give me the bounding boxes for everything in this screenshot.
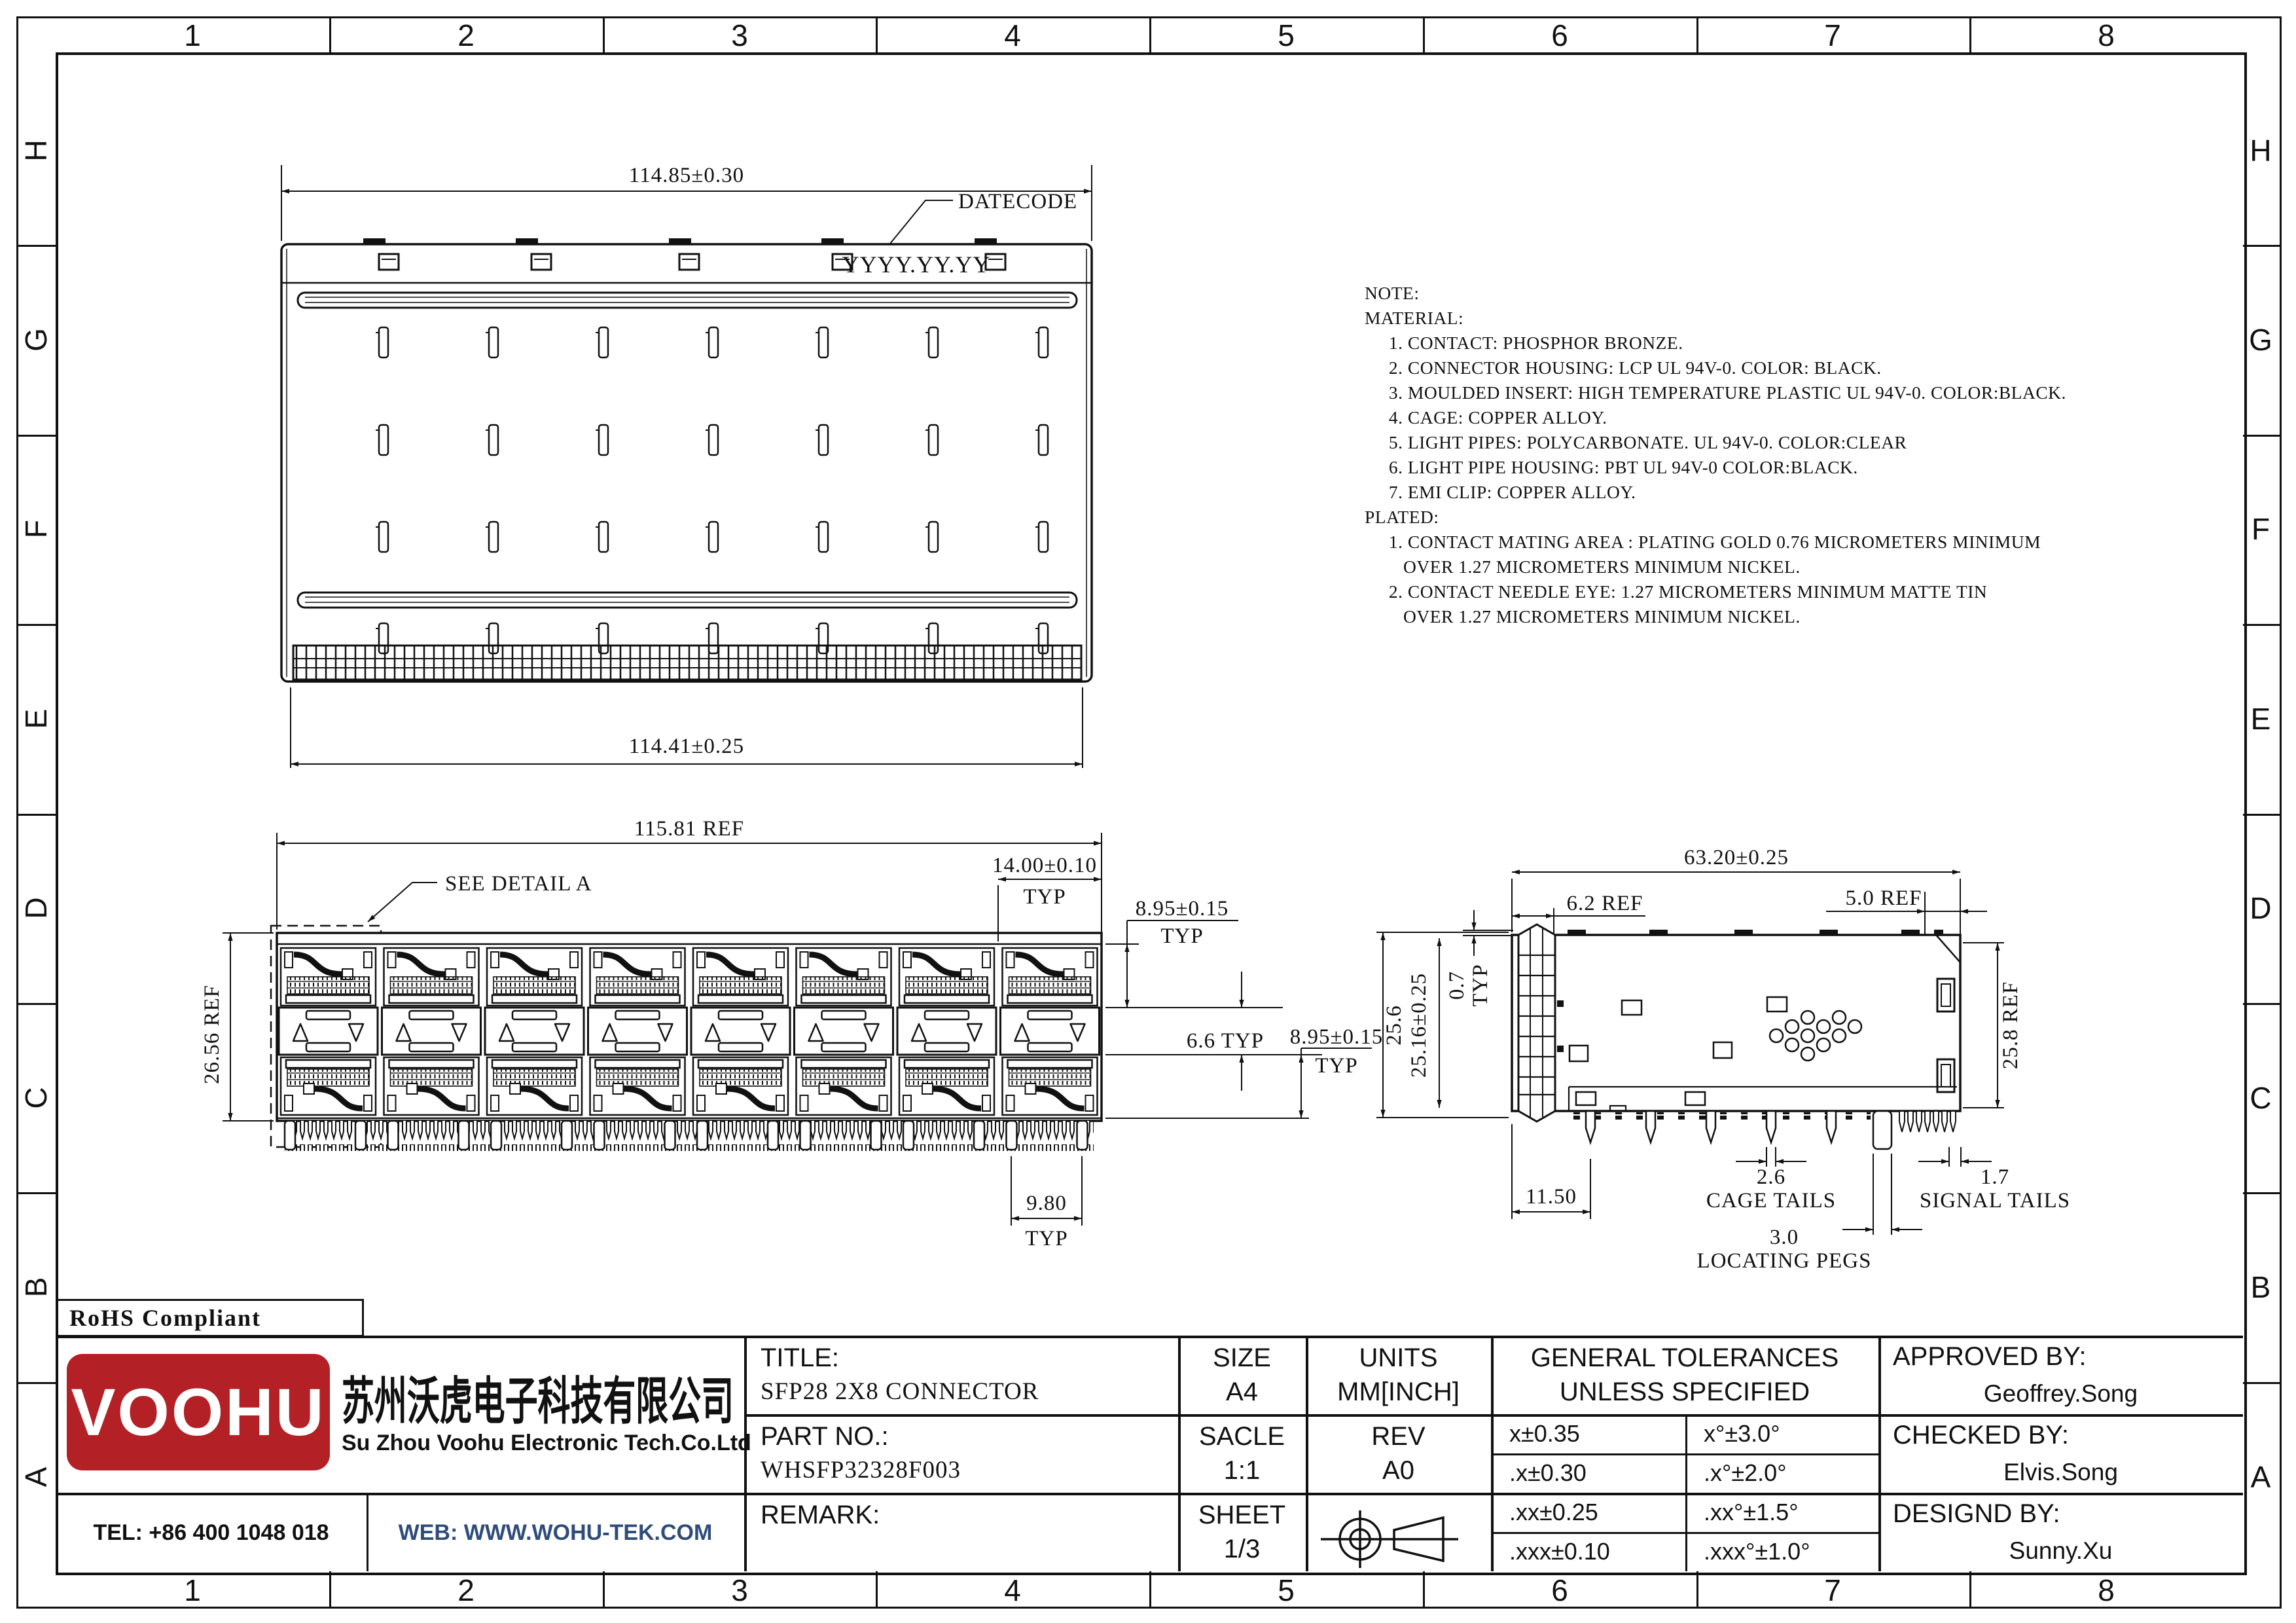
- datecode-label: DATECODE: [958, 190, 1077, 213]
- rev-value: A0: [1306, 1456, 1491, 1486]
- side-view: 63.20±0.25 5.0 REF 6.2 REF 0.7 TYP: [1371, 812, 2265, 1270]
- front-view-body: [277, 933, 1102, 1151]
- side-view-dim-h-outer: 25.6: [1376, 932, 1509, 1118]
- grid-row-label: H: [18, 131, 54, 170]
- note-line: 5. LIGHT PIPES: POLYCARBONATE. UL 94V-0.…: [1365, 432, 1907, 453]
- frame-tick: [16, 245, 56, 247]
- tolerance-angular: .xxx°±1.0°: [1685, 1532, 1897, 1571]
- grid-col-label: 2: [446, 17, 486, 54]
- dim-label: SIGNAL TAILS: [1920, 1189, 2070, 1213]
- grid-row-label: A: [18, 1457, 54, 1497]
- grid-col-label: 1: [173, 1572, 212, 1609]
- top-view-body: YYYY.YY.YY: [281, 238, 1092, 682]
- rev-label: REV: [1306, 1422, 1491, 1451]
- dim-text: 114.41±0.25: [629, 735, 744, 758]
- size-label: SIZE: [1178, 1343, 1306, 1373]
- tolerance-angular: x°±3.0°: [1685, 1414, 1897, 1453]
- company-tel: TEL: +86 400 1048 018: [56, 1495, 367, 1571]
- scale-label: SACLE: [1178, 1422, 1306, 1451]
- note-line: OVER 1.27 MICROMETERS MINIMUM NICKEL.: [1365, 556, 1801, 577]
- tolerance-linear: .x±0.30: [1491, 1453, 1704, 1493]
- side-view-body: [1512, 924, 1960, 1149]
- titleblock-line: [367, 1493, 368, 1571]
- note-line: MATERIAL:: [1365, 308, 1463, 329]
- tolerance-linear: .xx±0.25: [1491, 1493, 1704, 1532]
- frame-tick: [2243, 1382, 2280, 1384]
- frame-tick: [1696, 16, 1698, 52]
- dim-text: 63.20±0.25: [1684, 846, 1789, 869]
- part-no-label: PART NO.:: [761, 1422, 889, 1451]
- frame-tick: [16, 435, 56, 437]
- front-view-dim-peg-pitch: 9.80 TYP: [1011, 1156, 1082, 1250]
- frame-tick: [603, 16, 605, 52]
- frame-tick: [876, 1571, 878, 1607]
- note-line: 7. EMI CLIP: COPPER ALLOY.: [1365, 482, 1636, 503]
- grid-col-label: 8: [2087, 17, 2126, 54]
- company-name-cn: 苏州沃虎电子科技有限公司: [342, 1360, 744, 1434]
- note-line: 3. MOULDED INSERT: HIGH TEMPERATURE PLAS…: [1365, 382, 2066, 403]
- note-line: 2. CONNECTOR HOUSING: LCP UL 94V-0. COLO…: [1365, 357, 1882, 378]
- dim-text: 1.7: [1981, 1165, 2009, 1189]
- top-view: 114.85±0.30 DATECODE YYYY.YY.YY: [255, 151, 1132, 779]
- frame-tick: [1969, 16, 1971, 52]
- dim-text: 6.2 REF: [1566, 892, 1643, 915]
- company-name-en: Su Zhou Voohu Electronic Tech.Co.Ltd: [342, 1431, 751, 1456]
- company-web: WEB: WWW.WOHU-TEK.COM: [367, 1495, 744, 1571]
- dim-text: TYP: [1469, 964, 1492, 1006]
- remark-label: REMARK:: [761, 1501, 880, 1530]
- grid-col-label: 4: [993, 1572, 1032, 1609]
- side-view-dim-peg: 3.0 LOCATING PEGS: [1697, 1154, 1922, 1273]
- grid-row-label: H: [2241, 132, 2280, 169]
- dim-text: 25.8 REF: [1999, 981, 2022, 1070]
- units-label: UNITS: [1306, 1343, 1491, 1373]
- titleblock-line: [744, 1336, 747, 1571]
- grid-col-label: 1: [173, 17, 212, 54]
- grid-row-label: E: [2241, 701, 2280, 737]
- notes-block: NOTE: MATERIAL: 1. CONTACT: PHOSPHOR BRO…: [1365, 283, 2255, 636]
- emi-pins: [285, 1121, 1094, 1151]
- titleblock-line: [56, 1493, 2243, 1495]
- approved-label: APPROVED BY:: [1893, 1342, 2087, 1372]
- side-view-dim-signal-tail: 1.7 SIGNAL TAILS: [1918, 1147, 2070, 1213]
- grid-col-label: 7: [1813, 17, 1852, 54]
- grid-col-label: 6: [1540, 17, 1579, 54]
- dim-text: 115.81 REF: [634, 817, 744, 841]
- grid-row-label: B: [2241, 1269, 2280, 1305]
- dim-text: 25.6: [1382, 1005, 1406, 1046]
- dim-text: 8.95±0.15: [1136, 897, 1229, 921]
- dim-text: TYP: [1023, 885, 1066, 909]
- dim-label: CAGE TAILS: [1706, 1189, 1836, 1213]
- dim-text: 0.7: [1445, 971, 1469, 1000]
- dim-text: 114.85±0.30: [629, 164, 744, 187]
- emi-comb: [293, 646, 1081, 680]
- side-view-dim-h-rear: 25.8 REF: [1963, 943, 2022, 1108]
- front-view-dim-overall: 115.81 REF: [277, 817, 1102, 941]
- detail-a-label: SEE DETAIL A: [445, 872, 592, 896]
- dim-text: TYP: [1025, 1227, 1067, 1250]
- frame-tick: [16, 814, 56, 816]
- grid-col-label: 3: [720, 1572, 759, 1609]
- dim-text: TYP: [1160, 924, 1203, 948]
- tolerance-linear: x±0.35: [1491, 1414, 1704, 1453]
- signal-tails: [1899, 1111, 1956, 1132]
- dim-text: 25.16±0.25: [1407, 973, 1431, 1078]
- projection-symbol: [1316, 1506, 1479, 1568]
- dim-text: 5.0 REF: [1845, 886, 1922, 910]
- note-line: PLATED:: [1365, 507, 1439, 528]
- scale-value: 1:1: [1178, 1456, 1306, 1486]
- units-value: MM[INCH]: [1306, 1377, 1491, 1407]
- frame-tick: [603, 1571, 605, 1607]
- title-value: SFP28 2X8 CONNECTOR: [761, 1377, 1039, 1406]
- grid-row-label: D: [18, 888, 54, 928]
- dim-text: 26.56 REF: [200, 985, 224, 1084]
- tol-header-1: GENERAL TOLERANCES: [1491, 1343, 1878, 1373]
- grid-row-label: E: [18, 699, 54, 739]
- company-logo: VOOHU: [67, 1354, 330, 1470]
- note-line: OVER 1.27 MICROMETERS MINIMUM NICKEL.: [1365, 606, 1801, 627]
- frame-tick: [2243, 245, 2280, 247]
- note-line: 4. CAGE: COPPER ALLOY.: [1365, 407, 1607, 428]
- frame-tick: [876, 16, 878, 52]
- front-view-dim-height: 26.56 REF: [200, 933, 274, 1121]
- side-view-dim-back: 5.0 REF: [1826, 886, 1987, 936]
- grid-col-label: 8: [2087, 1572, 2126, 1609]
- frame-tick: [1969, 1571, 1971, 1607]
- dim-text: 14.00±0.10: [992, 854, 1097, 877]
- checked-value: Elvis.Song: [1878, 1459, 2243, 1486]
- frame-tick: [329, 1571, 331, 1607]
- dim-text: 6.6 TYP: [1187, 1029, 1264, 1053]
- locating-peg: [1873, 1111, 1892, 1149]
- grid-col-label: 5: [1266, 17, 1306, 54]
- designed-label: DESIGND BY:: [1893, 1499, 2060, 1529]
- frame-tick: [16, 1003, 56, 1005]
- rohs-badge: RoHS Compliant: [56, 1299, 364, 1337]
- grid-col-label: 5: [1266, 1572, 1306, 1609]
- note-line: 1. CONTACT MATING AREA : PLATING GOLD 0.…: [1365, 532, 2041, 553]
- frame-tick: [16, 1382, 56, 1384]
- approved-value: Geoffrey.Song: [1878, 1380, 2243, 1408]
- front-view-dim-port-top: 8.95±0.15 TYP: [1105, 897, 1283, 1008]
- grid-col-label: 3: [720, 17, 759, 54]
- checked-label: CHECKED BY:: [1893, 1421, 2069, 1450]
- bottom-stubs: [1563, 1112, 1871, 1120]
- titleblock-line: [56, 1336, 2243, 1338]
- frame-tick: [16, 624, 56, 626]
- frame-tick: [16, 1192, 56, 1194]
- dim-text: 11.50: [1526, 1185, 1577, 1209]
- grid-col-label: 7: [1813, 1572, 1852, 1609]
- side-view-dim-cage-tail: 2.6 CAGE TAILS: [1706, 1147, 1836, 1213]
- frame-tick: [1149, 1571, 1151, 1607]
- grid-row-label: F: [18, 509, 54, 549]
- dim-text: 9.80: [1026, 1192, 1067, 1215]
- tol-header-2: UNLESS SPECIFIED: [1491, 1377, 1878, 1407]
- side-view-dim-finger: 0.7 TYP: [1445, 910, 1513, 1007]
- title-label: TITLE:: [761, 1343, 839, 1373]
- dim-text: 8.95±0.15: [1290, 1025, 1384, 1049]
- note-line: 2. CONTACT NEEDLE EYE: 1.27 MICROMETERS …: [1365, 581, 1987, 602]
- sheet-label: SHEET: [1178, 1501, 1306, 1530]
- dim-label: LOCATING PEGS: [1697, 1249, 1872, 1273]
- frame-tick: [1423, 16, 1425, 52]
- part-no-value: WHSFP32328F003: [761, 1456, 961, 1484]
- dim-text: 2.6: [1757, 1165, 1785, 1189]
- grid-row-label: C: [18, 1078, 54, 1118]
- size-value: A4: [1178, 1377, 1306, 1407]
- top-view-dim-width-bottom: 114.41±0.25: [291, 687, 1083, 768]
- note-line: 6. LIGHT PIPE HOUSING: PBT UL 94V-0 COLO…: [1365, 457, 1858, 478]
- grid-col-label: 4: [993, 17, 1032, 54]
- grid-row-label: G: [18, 320, 54, 359]
- frame-tick: [1149, 16, 1151, 52]
- front-view: 115.81 REF SEE DETAIL A 26.56 REF: [183, 812, 1374, 1257]
- frame-tick: [329, 16, 331, 52]
- frame-tick: [1696, 1571, 1698, 1607]
- top-bar: [298, 293, 1077, 308]
- drawing-sheet: 1 2 3 4 5 6 7 8 1 2 3 4 5 6 7 8 H G F E …: [0, 0, 2296, 1623]
- side-view-dim-front-offset: 11.50: [1512, 1124, 1590, 1219]
- bottom-bar: [298, 593, 1077, 608]
- grid-row-label: A: [2241, 1459, 2280, 1495]
- grid-row-label: B: [18, 1267, 54, 1307]
- designed-value: Sunny.Xu: [1878, 1537, 2243, 1565]
- sheet-value: 1/3: [1178, 1535, 1306, 1564]
- dim-text: TYP: [1315, 1054, 1357, 1078]
- tolerance-angular: .x°±2.0°: [1685, 1453, 1897, 1493]
- side-view-dim-h-cage: 25.16±0.25: [1407, 938, 1439, 1108]
- datecode-value: YYYY.YY.YY: [842, 251, 991, 278]
- tolerance-angular: .xx°±1.5°: [1685, 1493, 1897, 1532]
- note-line: 1. CONTACT: PHOSPHOR BRONZE.: [1365, 333, 1683, 354]
- dim-text: 3.0: [1770, 1226, 1799, 1249]
- emi-finger-stack: [1518, 924, 1555, 1122]
- note-line: NOTE:: [1365, 283, 1419, 304]
- tolerance-linear: .xxx±0.10: [1491, 1532, 1704, 1571]
- grid-col-label: 6: [1540, 1572, 1579, 1609]
- frame-tick: [1423, 1571, 1425, 1607]
- grid-col-label: 2: [446, 1572, 486, 1609]
- front-view-dim-pitch: 14.00±0.10 TYP: [992, 854, 1102, 941]
